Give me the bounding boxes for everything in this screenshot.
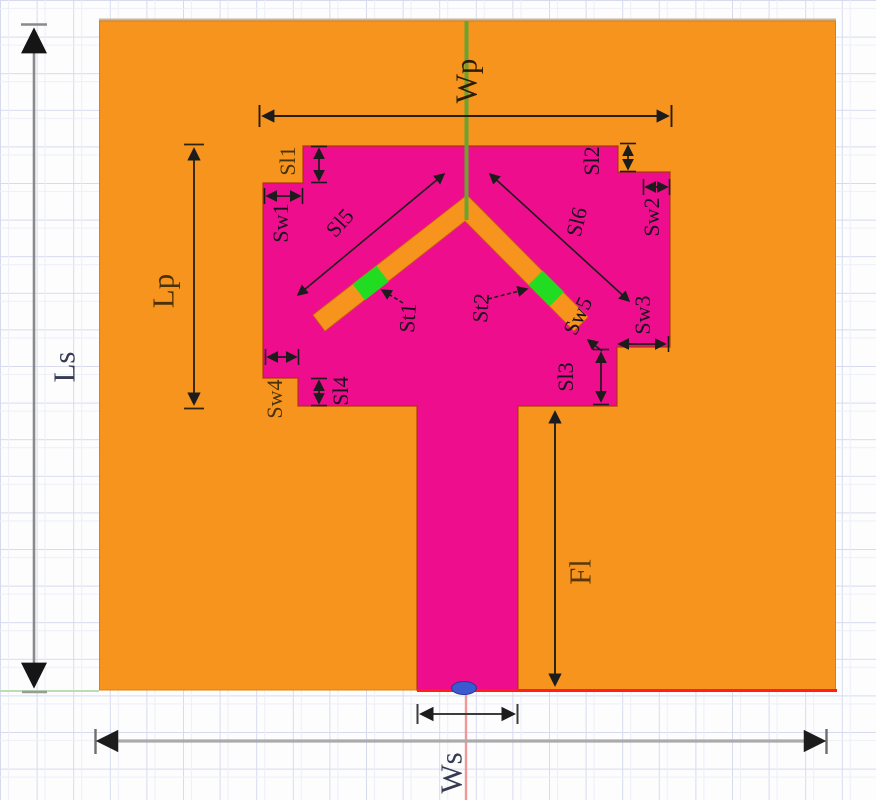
feed-port	[452, 682, 477, 695]
antenna-layout-figure: Ls Lp Wp Ws Fl Sl1 Sw1 Sl5 Sl6 Sl2 Sw2 S…	[0, 0, 876, 800]
antenna-geometry-svg	[0, 0, 876, 800]
